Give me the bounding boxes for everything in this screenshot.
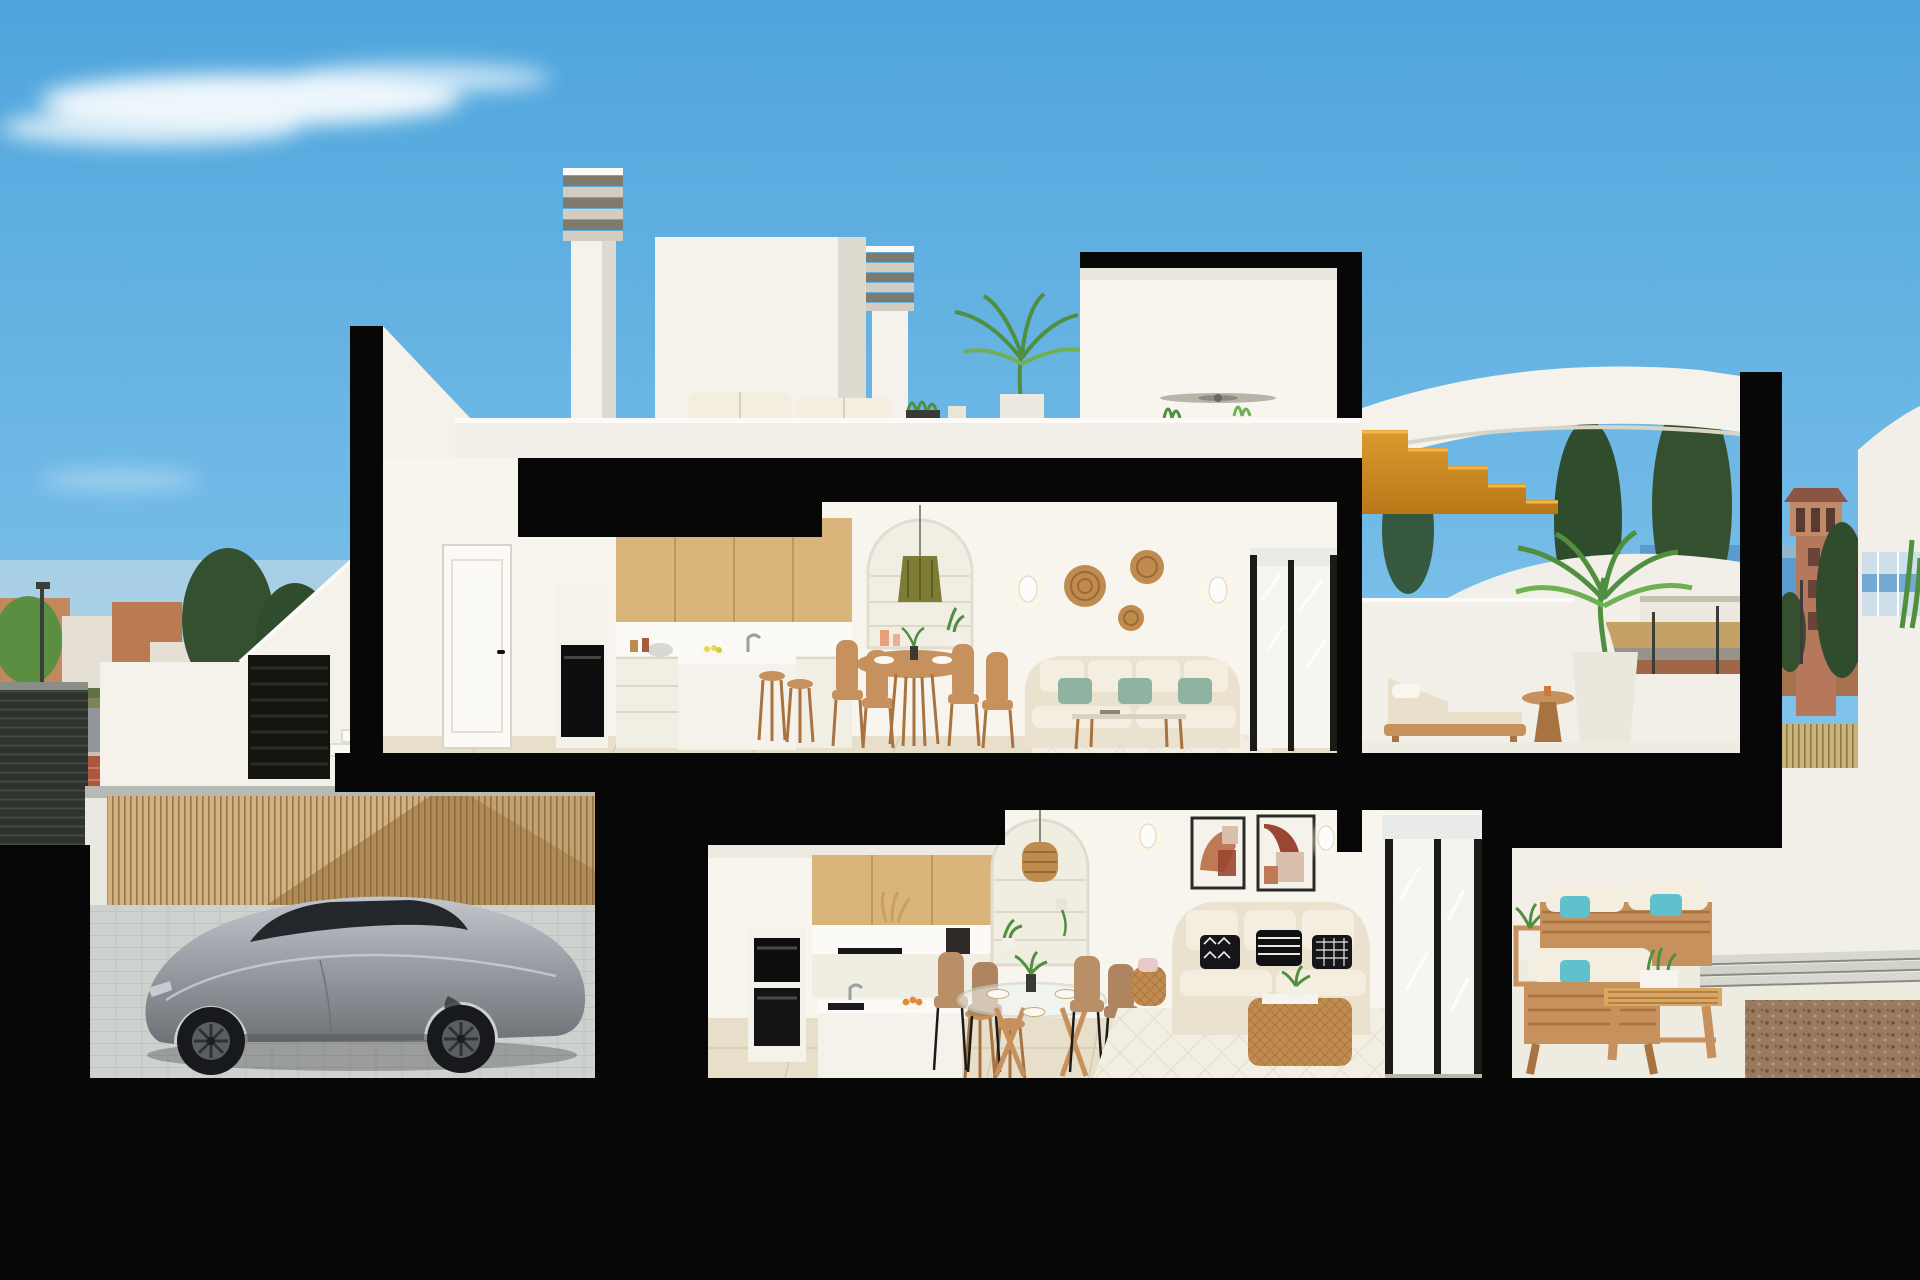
dining-chair	[832, 640, 863, 746]
shed-roof	[318, 622, 396, 632]
shelf-pot	[1056, 898, 1067, 910]
roof-sofa-cushion	[688, 392, 792, 432]
car-wheel-front	[177, 1007, 245, 1075]
door-frame	[1330, 555, 1337, 751]
sofa-seat-front	[1540, 942, 1712, 966]
white-cushion	[1528, 948, 1652, 982]
view-field	[1606, 622, 1740, 652]
door-frame	[1474, 839, 1482, 1079]
back-counter	[812, 954, 992, 998]
haze	[0, 560, 400, 710]
cabinet-seams	[675, 518, 793, 622]
cut-ground-band	[0, 1078, 1920, 1280]
table-vase	[910, 646, 918, 660]
car-rocker-shadow	[232, 1034, 478, 1042]
plant-side-table	[1516, 904, 1544, 984]
double-oven-lower	[754, 988, 800, 1046]
sofa-wood-back	[1540, 902, 1712, 944]
cut-column-mid	[1337, 252, 1362, 852]
bamboo-texture	[107, 796, 595, 916]
door-frame	[1288, 560, 1294, 751]
architectural-render	[0, 0, 1920, 1280]
car-wheel-rear	[427, 1005, 495, 1073]
upper-kitchen	[556, 518, 852, 750]
oven-tower	[556, 585, 608, 748]
dried-wheat-decor	[882, 892, 910, 922]
drawer-seams	[616, 656, 852, 748]
edge-greenery	[1902, 540, 1920, 628]
mountain	[1800, 522, 1890, 560]
teal-pillow	[1560, 960, 1590, 984]
lounger-pillow	[1392, 684, 1420, 698]
white-cushion	[1546, 884, 1624, 912]
ground-sofa	[1172, 902, 1370, 1035]
gate-slats	[0, 688, 88, 852]
seat-cushion	[1136, 706, 1236, 728]
roof-pot-white	[948, 406, 966, 424]
lower-terrace	[1512, 848, 1920, 1082]
bamboo-wall	[107, 796, 595, 916]
lounger-frame	[1384, 724, 1526, 736]
sofa-back-cushion	[1040, 660, 1084, 692]
conifer-stair	[1554, 420, 1622, 620]
curb	[0, 752, 396, 757]
side-table-plant	[1516, 904, 1544, 928]
sea	[1782, 558, 1920, 602]
dry-field	[1782, 600, 1920, 696]
basket-cloth	[1138, 958, 1158, 972]
teal-pillow	[1650, 894, 1682, 916]
kitchen-island	[678, 652, 796, 750]
dining-chair-tan	[934, 952, 968, 1070]
patterned-pillow-checker	[1312, 935, 1352, 969]
oven-tower	[748, 928, 806, 1062]
street-lamp-pole	[40, 588, 44, 794]
exterior-stair-volume	[100, 555, 392, 790]
place-plate	[932, 656, 952, 664]
garage	[85, 786, 618, 1082]
sidewalk-stripes	[0, 768, 396, 804]
sage-pillow	[1118, 678, 1152, 704]
penthouse-volume	[655, 237, 866, 433]
tower-window	[1808, 548, 1820, 566]
conifer-stair-2	[1652, 393, 1732, 617]
view-house-roof	[1640, 596, 1740, 602]
back-wall	[1782, 768, 1920, 858]
niche-shelves	[870, 576, 970, 626]
upper-rug-pattern	[1032, 734, 1272, 755]
car-body	[146, 897, 586, 1044]
car-side-vent	[445, 996, 476, 1028]
garage-floor-pattern	[90, 905, 618, 1082]
dining-table-top	[856, 650, 972, 678]
stair-treads	[1362, 432, 1558, 502]
sofa-back-cushion	[1186, 910, 1238, 950]
island-faucet	[748, 635, 760, 652]
town-building	[150, 642, 276, 696]
parapet-plant	[1164, 409, 1180, 418]
backdrop-town-left	[0, 548, 400, 818]
town-building	[0, 598, 70, 696]
cut-ceiling-slab	[518, 427, 1337, 537]
backdrop-right	[1774, 488, 1920, 858]
bamboo-light-band-2	[470, 796, 595, 870]
pedestrian-sign	[110, 677, 128, 695]
sky	[0, 0, 1920, 1280]
tower-arch	[1826, 508, 1835, 532]
skyline-far	[1782, 545, 1920, 561]
oak-wall-cabinets	[616, 518, 852, 622]
roof-parapet	[455, 418, 1362, 458]
table-wood-legs	[996, 1008, 1086, 1076]
penthouse-room-wall	[1080, 266, 1337, 422]
abstract-art-prints	[1192, 816, 1314, 890]
lamp-pole	[1856, 566, 1859, 662]
patterned-pillow-triangles	[1200, 935, 1240, 969]
dirt-strip	[1782, 662, 1920, 696]
roof-planter-greens	[908, 402, 936, 410]
red-sidewalk	[0, 756, 396, 818]
outdoor-sofa-front	[1524, 948, 1660, 1074]
base-cabinets	[616, 656, 852, 748]
cooking-pot	[647, 643, 673, 657]
table-bouquet	[1015, 952, 1047, 974]
sofa-wood-base	[1524, 982, 1660, 1044]
seat-cushion	[1180, 970, 1272, 996]
town-building	[112, 602, 182, 696]
tile-seams	[708, 1018, 1482, 1082]
upper-floor-strip	[383, 736, 1337, 755]
chimney-right	[866, 246, 914, 430]
lounger-seat	[1446, 712, 1522, 728]
louvered-door-slats	[250, 668, 328, 764]
table-plant	[1282, 966, 1310, 986]
arched-niche	[868, 520, 972, 648]
terrace-side-table	[1522, 686, 1574, 744]
counter-jar	[642, 638, 649, 652]
sofa-back-cushion	[1244, 910, 1296, 950]
rattan-wall-baskets	[1064, 550, 1164, 631]
sun-lounger	[1384, 678, 1526, 746]
bamboo-hedge-lines	[1782, 724, 1920, 770]
penthouse-volume-shade	[838, 237, 866, 433]
palm-planter	[1572, 652, 1638, 745]
stair-parapet-edge	[240, 555, 358, 662]
peninsula-island	[818, 1000, 962, 1085]
balustrade-mullions	[1878, 552, 1898, 616]
place-plate	[1023, 1008, 1045, 1017]
table-plant	[902, 628, 924, 646]
peninsula-top	[818, 1000, 962, 1013]
trees-behind-stair	[1382, 393, 1740, 620]
double-oven	[754, 938, 800, 982]
view-house	[1640, 598, 1740, 624]
strip-paving	[1700, 950, 1920, 987]
parapet-top-edge	[455, 418, 1362, 423]
clouds	[0, 63, 550, 490]
sports-car	[146, 897, 586, 1075]
conifer-canopy-2	[255, 583, 335, 707]
side-basket	[1132, 958, 1166, 1006]
cut-column-upper-right	[1740, 372, 1782, 753]
kitchen-ceiling-shade	[708, 845, 1005, 858]
dining-chair-tan	[1104, 964, 1138, 1072]
view-road	[1606, 648, 1740, 661]
white-cushion	[1628, 882, 1708, 910]
sofa-body	[1172, 902, 1370, 1035]
sign-glyph	[115, 682, 123, 690]
teal-pillow	[1560, 896, 1590, 918]
upper-floor	[383, 326, 1337, 755]
chimney-shaft	[872, 308, 908, 430]
concrete-cap	[85, 786, 595, 798]
niche-plant-pot	[946, 632, 960, 646]
bush-row	[0, 688, 396, 702]
sea-glimpse	[1640, 545, 1740, 589]
conifer-tree	[200, 548, 233, 770]
upper-sliding-door	[1250, 548, 1337, 751]
balustrade-sea	[1862, 574, 1920, 592]
conifer-right-2	[1774, 592, 1806, 672]
pane-reflections	[1400, 866, 1468, 1010]
built-in-oven	[561, 645, 604, 737]
sign-pole	[118, 692, 121, 808]
garage-floor	[90, 905, 618, 1082]
neighbour-wall	[1858, 406, 1920, 848]
ground-niche	[992, 808, 1088, 965]
cut-left-base	[0, 845, 90, 1082]
chimney-shaft	[571, 240, 616, 430]
left-gable	[383, 326, 508, 458]
upper-interior-wall	[383, 420, 1337, 755]
neighbour-volume	[1858, 406, 1920, 848]
tower-roof	[1784, 488, 1848, 502]
asphalt-road	[0, 708, 396, 756]
terrace-floor	[1362, 742, 1740, 753]
counter-jar	[630, 640, 638, 652]
ground-sliding-doors	[1382, 815, 1482, 1080]
ceiling-fan	[1160, 393, 1276, 403]
patterned-pillow-stripes	[1256, 930, 1302, 966]
dining-chair-tan	[1070, 956, 1104, 1072]
upper-niche	[868, 505, 972, 648]
sofa-back-cushion	[1302, 910, 1354, 950]
ground-dining	[934, 952, 1138, 1076]
oven-handle	[564, 656, 601, 659]
cooktop	[838, 948, 902, 954]
cut-column-left	[350, 326, 383, 755]
view-lamp	[1652, 612, 1655, 674]
garage-pier	[85, 790, 107, 1082]
sofa-back-cushion	[1088, 660, 1132, 692]
arched-niche	[992, 820, 1088, 965]
table-pedestal	[890, 674, 938, 746]
bamboo-light-band	[107, 796, 430, 916]
sage-pillow	[1058, 678, 1092, 704]
place-plate	[874, 656, 894, 664]
terrace-back-view	[1606, 596, 1740, 678]
trailing-plant	[1062, 910, 1066, 936]
tower-window	[1808, 580, 1820, 598]
table-top	[1604, 988, 1722, 1006]
blind-box	[1382, 815, 1482, 839]
fruit-bowl	[699, 647, 725, 657]
chimney-left	[563, 168, 623, 430]
wall-sconce-ground-left	[1131, 821, 1165, 855]
upper-terrace	[1362, 532, 1740, 753]
car-shoulder-highlight	[166, 955, 556, 1000]
louvered-door	[248, 655, 330, 779]
door-pane	[1257, 566, 1288, 748]
parapet-plant	[1234, 407, 1250, 416]
roof-swoosh-band	[1288, 367, 1740, 474]
table-vase	[1026, 974, 1036, 992]
niche-vase	[893, 634, 900, 646]
dining-chair	[948, 644, 979, 746]
backsplash	[616, 622, 852, 656]
roof-palm-pot	[1000, 394, 1044, 424]
door-frame	[1434, 839, 1441, 1079]
cloud-wisp	[290, 63, 550, 93]
right-roof-assembly	[1288, 367, 1920, 848]
left-exterior	[0, 555, 392, 852]
table-planter	[1640, 970, 1678, 988]
upper-floor-seams	[472, 736, 1300, 755]
dining-chair	[862, 650, 893, 748]
sofa-body	[1025, 656, 1240, 748]
round-tree	[0, 596, 62, 684]
door-pane	[1441, 839, 1474, 1079]
dining-chair-tan	[968, 962, 1002, 1072]
door-track	[1385, 1074, 1482, 1080]
conifer-canopy	[182, 548, 274, 692]
ground-floor	[708, 808, 1482, 1085]
cut-structure	[0, 252, 1782, 1082]
cut-mid-slab	[335, 753, 1782, 1082]
table-sheet	[1262, 994, 1318, 1004]
slatted-coffee-table	[1604, 948, 1722, 1060]
roof-sofa-cushion	[796, 398, 892, 434]
roof-planter	[906, 410, 940, 428]
ground-floor-tiles	[708, 1018, 1482, 1082]
render-canvas	[0, 0, 1920, 1280]
back-road	[1782, 640, 1920, 660]
penthouse-ceiling-shade	[1080, 266, 1337, 280]
town-building	[62, 616, 117, 696]
niche-vase	[880, 630, 889, 646]
chimney-shaft-shade	[602, 240, 616, 430]
cloud-large	[40, 74, 460, 126]
coffee-machine	[946, 928, 970, 954]
wooden-stair	[1362, 430, 1558, 514]
cut-penthouse-band	[1080, 252, 1362, 268]
glass-balustrade	[1862, 552, 1920, 616]
upper-dining	[832, 628, 1013, 748]
bamboo-hedge	[1782, 724, 1920, 770]
door-pane	[1294, 566, 1330, 748]
black-sink	[828, 1003, 864, 1010]
niche-shelves	[994, 880, 1086, 940]
shelf-pot	[1002, 938, 1015, 950]
industrial-shed	[318, 622, 396, 696]
tower-belfry	[1790, 502, 1842, 536]
gate-cap	[0, 682, 88, 690]
exterior-steps	[330, 688, 392, 756]
grass-strip	[0, 698, 396, 710]
penthouse-room	[1080, 266, 1337, 422]
view-lamp	[1716, 606, 1719, 674]
upper-sofa	[1025, 656, 1240, 748]
car-shadow	[147, 1039, 577, 1071]
backsplash	[812, 925, 992, 955]
tower-window	[1808, 612, 1820, 630]
island-top	[678, 652, 796, 664]
island-faucet	[850, 985, 862, 1000]
car-glass	[250, 900, 468, 942]
terrace-parapet	[1362, 598, 1740, 748]
town-building	[266, 612, 326, 696]
ground-kitchen	[748, 855, 1025, 1085]
view-dirt	[1606, 660, 1740, 678]
rattan-pendant	[1022, 842, 1058, 882]
watchtower	[1784, 488, 1848, 716]
upper-rug	[1032, 734, 1272, 755]
bar-stools	[759, 671, 813, 743]
gravel-texture	[1745, 1000, 1920, 1080]
parapet-band	[455, 418, 1362, 458]
conifer-stair-3	[1382, 466, 1434, 594]
sofa-back-cushion	[1184, 660, 1228, 692]
car-door-seam	[320, 960, 331, 1042]
dark-slatted-gate	[0, 688, 88, 852]
street-lamp-head	[36, 582, 50, 589]
sofa-back-cushion	[1136, 660, 1180, 692]
glass-table-top	[958, 983, 1106, 1017]
wall-sconce-ground-right	[1309, 823, 1343, 857]
pane-reflections	[1262, 574, 1326, 668]
sage-pillow	[1178, 678, 1212, 704]
dining-chair	[982, 652, 1013, 748]
planter-greens	[1648, 948, 1676, 970]
ground-interior-wall	[708, 810, 1482, 1082]
wall-sconce-upper-left	[1009, 571, 1047, 609]
green-pendant-lamp	[898, 556, 942, 602]
terrace-palm	[1516, 532, 1692, 745]
gravel-bed	[1745, 1000, 1920, 1080]
roof-terrace-furniture	[688, 294, 1250, 434]
chimney-louvers	[563, 168, 623, 241]
seat-cushion	[1032, 706, 1132, 728]
door-pane	[1393, 839, 1434, 1079]
kitchen-stools	[965, 1008, 1025, 1080]
shelf-plant	[1004, 920, 1022, 938]
chimney-louvers	[866, 246, 914, 311]
lamp-pole	[1800, 580, 1803, 664]
roof-level	[563, 168, 1337, 434]
wall-sconce-upper-right	[1199, 572, 1237, 610]
roof-palm	[955, 294, 1080, 418]
table-cup	[1544, 686, 1551, 696]
roof-swoosh-shadow	[1290, 427, 1740, 470]
cloud-small	[40, 470, 200, 490]
outdoor-sofa-back	[1540, 882, 1712, 966]
cloud-large-2	[0, 110, 300, 146]
door-handle	[497, 650, 505, 654]
interior-door	[443, 545, 511, 748]
oak-upper-cabinets	[812, 855, 992, 925]
door-frame	[1385, 839, 1393, 1079]
white-berm	[1380, 554, 1740, 650]
